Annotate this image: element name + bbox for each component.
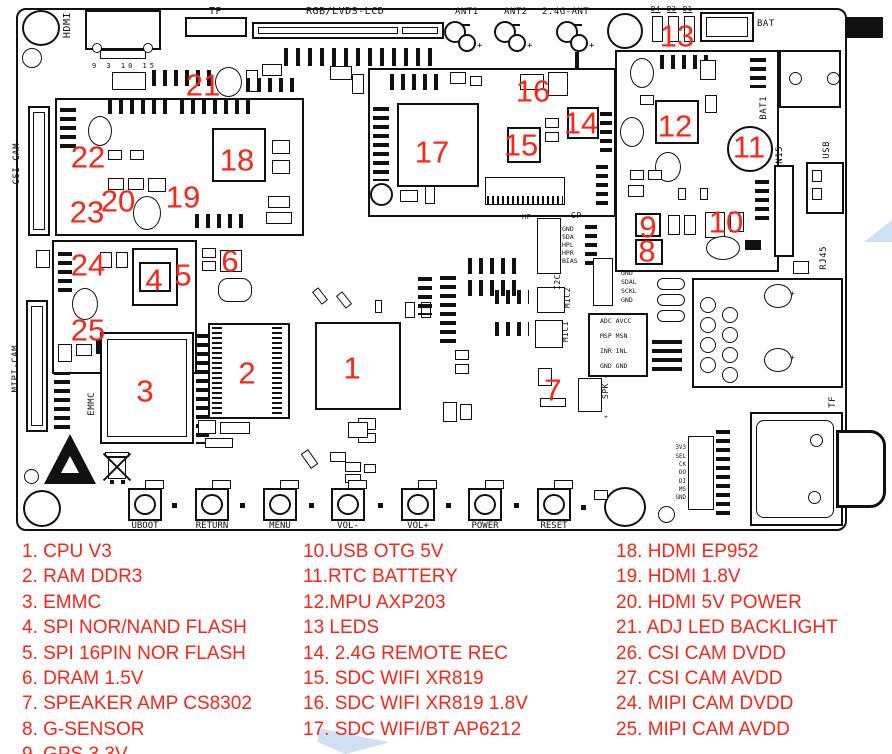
pin-row bbox=[246, 78, 298, 92]
component bbox=[425, 186, 435, 204]
mount-hole bbox=[23, 490, 61, 527]
gp-pin-label: SDA bbox=[562, 234, 574, 241]
legend-item: 5. SPI 16PIN NOR FLASH bbox=[22, 641, 252, 666]
component bbox=[700, 60, 716, 80]
i2c-pin-label: GND bbox=[621, 270, 633, 277]
button-cap bbox=[474, 494, 496, 515]
callout-5: 5 bbox=[174, 260, 191, 291]
audio-pin-label: MSP MSN bbox=[600, 333, 627, 340]
emmc-silk-label: EMMC bbox=[88, 392, 97, 416]
dot bbox=[309, 503, 314, 508]
button-cap bbox=[407, 494, 429, 515]
component bbox=[130, 150, 144, 160]
mount-hole bbox=[658, 506, 675, 523]
component bbox=[722, 347, 738, 363]
tf-pin-label: 3V3 bbox=[668, 446, 686, 452]
uboot-button bbox=[128, 488, 162, 521]
usb-label: USB bbox=[823, 141, 832, 159]
component bbox=[700, 357, 716, 373]
component bbox=[620, 117, 644, 147]
legend-item: 9. GPS 3.3V bbox=[22, 742, 252, 754]
component bbox=[148, 178, 166, 192]
legend-item: 26. CSI CAM DVDD bbox=[616, 641, 838, 666]
callout-25: 25 bbox=[71, 315, 105, 346]
battery-connector-label: BAT bbox=[757, 20, 775, 29]
pcb-annotation-diagram: HDMI 9 3 10 15 TP RGB/LVDS-LCD ANT1 ANT2… bbox=[0, 0, 892, 754]
plus-mark: + bbox=[790, 290, 795, 298]
led-d3-label: D3 bbox=[667, 6, 676, 13]
component bbox=[348, 422, 368, 438]
pin-row bbox=[468, 258, 516, 274]
callout-10: 10 bbox=[709, 207, 743, 238]
button-cap bbox=[543, 494, 565, 515]
callout-6: 6 bbox=[221, 246, 238, 277]
callout-11: 11 bbox=[733, 132, 765, 163]
tf-pin-label: SEL bbox=[668, 455, 686, 461]
component bbox=[455, 364, 469, 374]
pin-row bbox=[495, 290, 529, 304]
callout-21: 21 bbox=[186, 70, 220, 101]
legend-item: 3. EMMC bbox=[22, 590, 252, 615]
ant1-label: ANT1 bbox=[455, 8, 479, 17]
callout-22: 22 bbox=[71, 142, 105, 173]
component bbox=[793, 261, 809, 274]
pin-row bbox=[652, 340, 682, 374]
legend-item: 2. RAM DDR3 bbox=[22, 564, 252, 589]
component bbox=[280, 480, 299, 489]
legend-item: 14. 2.4G REMOTE REC bbox=[303, 641, 528, 666]
tf-pin-label: DO bbox=[668, 471, 686, 477]
component bbox=[145, 480, 164, 489]
dot bbox=[378, 503, 383, 508]
callout-23: 23 bbox=[70, 197, 104, 228]
legend-item: 6. DRAM 1.5V bbox=[22, 666, 252, 691]
component bbox=[455, 350, 469, 360]
callout-17: 17 bbox=[415, 137, 449, 168]
component bbox=[402, 27, 438, 34]
gp-label: GP bbox=[571, 212, 582, 220]
minus-mark bbox=[574, 24, 582, 26]
pin-row bbox=[487, 196, 563, 204]
callout-9: 9 bbox=[639, 212, 656, 243]
component bbox=[545, 118, 559, 128]
legend-item: 13 LEDS bbox=[303, 615, 528, 640]
i2c-header bbox=[593, 258, 613, 306]
component bbox=[460, 404, 472, 420]
component bbox=[648, 170, 662, 180]
legend-item: 21. ADJ LED BACKLIGHT bbox=[616, 615, 838, 640]
component bbox=[418, 480, 437, 489]
component bbox=[218, 278, 252, 302]
tf-pin-label: MS bbox=[668, 488, 686, 494]
callout-12: 12 bbox=[658, 111, 692, 142]
cn15-connector bbox=[774, 165, 794, 257]
legend-item: 12.MPU AXP203 bbox=[303, 590, 528, 615]
component bbox=[706, 236, 740, 260]
pin-row bbox=[284, 48, 436, 66]
dot bbox=[581, 505, 586, 510]
plus-mark: + bbox=[589, 42, 595, 51]
component bbox=[808, 491, 821, 504]
pin-row bbox=[195, 214, 243, 228]
pin-row bbox=[418, 277, 432, 315]
uart-header bbox=[596, 165, 608, 207]
tp-connector bbox=[185, 17, 247, 37]
ant2-label: ANT2 bbox=[504, 8, 528, 17]
callout-4: 4 bbox=[145, 265, 162, 296]
component bbox=[537, 218, 561, 274]
dot bbox=[446, 503, 451, 508]
reset-button-label: RESET bbox=[540, 521, 567, 531]
legend-item: 4. SPI NOR/NAND FLASH bbox=[22, 615, 252, 640]
mipi-cam-label: MIPI-CAM bbox=[12, 345, 21, 392]
tf-pin-label: GND bbox=[668, 496, 686, 502]
component bbox=[348, 480, 367, 489]
component bbox=[268, 196, 290, 208]
component bbox=[789, 72, 802, 85]
tf-pin-label: CK bbox=[668, 463, 686, 469]
tf-pin-label: DI bbox=[668, 480, 686, 486]
component bbox=[764, 348, 792, 372]
legend-item: 7. SPEAKER AMP CS8302 bbox=[22, 691, 252, 716]
component bbox=[756, 420, 834, 518]
component bbox=[684, 215, 696, 235]
component bbox=[266, 212, 292, 224]
bat1-label: BAT1 bbox=[760, 96, 769, 120]
plus-mark: + bbox=[527, 42, 533, 51]
menu-button-label: MENU bbox=[269, 521, 291, 531]
gp-pin-label: HPR bbox=[562, 250, 574, 257]
esd-warning-inner bbox=[61, 456, 79, 473]
legend-item: 19. HDMI 1.8V bbox=[616, 564, 838, 589]
dot bbox=[172, 503, 177, 508]
component bbox=[400, 190, 418, 202]
mic1-part bbox=[535, 320, 563, 348]
component bbox=[630, 58, 654, 88]
component bbox=[272, 140, 290, 154]
pin-row bbox=[390, 74, 442, 90]
component bbox=[108, 150, 122, 160]
component bbox=[700, 297, 716, 313]
component bbox=[33, 112, 45, 230]
tf-label: TF bbox=[829, 396, 838, 408]
pin-row bbox=[212, 327, 222, 415]
csi-cam-label: CSI-CAM bbox=[13, 143, 22, 184]
component bbox=[548, 72, 568, 96]
component bbox=[722, 307, 738, 323]
legend-column-2: 10.USB OTG 5V 11.RTC BATTERY 12.MPU AXP2… bbox=[303, 539, 528, 742]
component bbox=[31, 306, 43, 426]
tf-header bbox=[688, 436, 714, 510]
component bbox=[657, 294, 685, 306]
pin-row bbox=[108, 100, 170, 114]
legend-item: 10.USB OTG 5V bbox=[303, 539, 528, 564]
pin-row bbox=[755, 180, 769, 220]
watermark-arrow bbox=[864, 220, 892, 242]
legend-item: 24. MIPI CAM DVDD bbox=[616, 691, 838, 716]
component bbox=[678, 188, 686, 200]
button-cap bbox=[337, 494, 359, 515]
minus-mark: - bbox=[604, 374, 608, 381]
component bbox=[700, 337, 716, 353]
tf-card bbox=[836, 430, 886, 508]
component bbox=[92, 43, 102, 53]
component bbox=[212, 480, 231, 489]
component bbox=[812, 188, 822, 200]
antenna-pad bbox=[570, 34, 588, 52]
legend-item: 25. MIPI CAM AVDD bbox=[616, 717, 838, 742]
plus-mark: + bbox=[790, 354, 795, 362]
mount-hole bbox=[24, 469, 39, 484]
component bbox=[443, 402, 457, 422]
button-cap bbox=[269, 494, 291, 515]
power-button bbox=[468, 488, 502, 521]
led-d4-label: D4 bbox=[651, 6, 660, 13]
pin-row bbox=[495, 322, 529, 336]
component bbox=[205, 438, 233, 448]
plus-mark: + bbox=[604, 414, 608, 421]
mount-hole bbox=[22, 10, 60, 46]
component bbox=[202, 248, 216, 258]
vol-minus-button-label: VOL- bbox=[337, 521, 359, 531]
legend-item: 16. SDC WIFI XR819 1.8V bbox=[303, 691, 528, 716]
ant-24g-label: 2.4G-ANT bbox=[542, 8, 589, 17]
dc-jack-label: DC bbox=[852, 22, 861, 34]
dot bbox=[514, 503, 519, 508]
component bbox=[594, 490, 608, 500]
component bbox=[100, 50, 146, 59]
vol-plus-button-label: VOL+ bbox=[407, 521, 429, 531]
vol-minus-button bbox=[331, 488, 365, 521]
legend-item: 20. HDMI 5V POWER bbox=[616, 590, 838, 615]
component bbox=[485, 480, 504, 489]
component bbox=[700, 317, 716, 333]
component bbox=[705, 95, 717, 113]
component bbox=[657, 310, 685, 322]
legend-item: 11.RTC BATTERY bbox=[303, 564, 528, 589]
rj45-label: RJ45 bbox=[820, 246, 829, 270]
callout-16: 16 bbox=[516, 76, 550, 107]
uboot-button-label: UBOOT bbox=[131, 521, 158, 531]
lcd-connector-label: RGB/LVDS-LCD bbox=[306, 7, 384, 17]
legend-item: 1. CPU V3 bbox=[22, 539, 252, 564]
gp-pin-label: GND bbox=[562, 226, 574, 233]
component bbox=[116, 252, 128, 268]
i2c-label: I2C bbox=[554, 274, 562, 290]
component bbox=[722, 367, 738, 383]
reset-button bbox=[537, 488, 571, 521]
component bbox=[258, 27, 398, 34]
button-cap bbox=[134, 494, 156, 515]
component bbox=[220, 422, 250, 434]
hdmi-port-label: HDMI bbox=[63, 12, 73, 38]
callout-14: 14 bbox=[564, 108, 598, 139]
minus-mark bbox=[512, 24, 520, 26]
component bbox=[640, 95, 654, 105]
pin-row bbox=[272, 327, 282, 415]
component bbox=[133, 196, 161, 230]
legend-item: 15. SDC WIFI XR819 bbox=[303, 666, 528, 691]
audio-pin-label: ADC AVCC bbox=[600, 318, 631, 325]
component bbox=[668, 215, 680, 235]
led-d1-label: D1 bbox=[683, 6, 692, 13]
weee-bin-icon bbox=[121, 480, 125, 484]
silk-marks: 9 3 10 15 bbox=[92, 63, 157, 70]
legend-item: 18. HDMI EP952 bbox=[616, 539, 838, 564]
component bbox=[364, 464, 376, 473]
callout-3: 3 bbox=[136, 376, 153, 407]
pin-row bbox=[750, 58, 766, 88]
component bbox=[706, 17, 748, 37]
component bbox=[628, 185, 644, 197]
mount-hole bbox=[607, 13, 643, 49]
pin-row bbox=[600, 112, 612, 152]
gp-pin-label: BIAS bbox=[562, 258, 578, 265]
legend-column-3: 18. HDMI EP952 19. HDMI 1.8V 20. HDMI 5V… bbox=[616, 539, 838, 742]
component bbox=[764, 284, 792, 308]
component bbox=[202, 261, 216, 271]
menu-button bbox=[263, 488, 297, 521]
callout-1: 1 bbox=[343, 353, 360, 384]
pin-row bbox=[716, 430, 730, 515]
power-button-label: POWER bbox=[471, 521, 498, 531]
component bbox=[405, 302, 415, 318]
callout-24: 24 bbox=[71, 250, 105, 281]
minus-mark bbox=[462, 24, 470, 26]
audio-pin-label: GND GND bbox=[600, 363, 627, 370]
legend-column-1: 1. CPU V3 2. RAM DDR3 3. EMMC 4. SPI NOR… bbox=[22, 539, 252, 754]
component bbox=[700, 188, 708, 200]
dot bbox=[240, 503, 245, 508]
return-button bbox=[195, 488, 229, 521]
component bbox=[370, 183, 393, 206]
component bbox=[575, 52, 579, 68]
component bbox=[545, 132, 559, 142]
mic2-label: MIC2 bbox=[564, 287, 572, 308]
weee-bin-icon bbox=[110, 480, 114, 484]
component bbox=[722, 327, 738, 343]
component bbox=[812, 170, 822, 182]
legend-item: 8. G-SENSOR bbox=[22, 717, 252, 742]
mic2-part bbox=[537, 287, 565, 313]
speaker-amp-part bbox=[578, 378, 602, 412]
component bbox=[657, 278, 685, 290]
plus-mark: + bbox=[477, 42, 483, 51]
component bbox=[470, 76, 482, 86]
button-cap bbox=[201, 494, 223, 515]
i2c-pin-label: SDAL bbox=[621, 279, 637, 286]
callout-13: 13 bbox=[660, 21, 694, 52]
i2c-pin-label: SCKL bbox=[621, 288, 637, 295]
spk-label: SPK bbox=[602, 383, 610, 399]
component bbox=[330, 452, 346, 462]
component bbox=[112, 72, 146, 90]
i2c-pin-label: GND bbox=[621, 297, 633, 304]
component bbox=[554, 480, 573, 489]
component bbox=[330, 66, 352, 80]
legend-item: 17. SDC WIFI/BT AP6212 bbox=[303, 717, 528, 742]
mic1-label: MIC1 bbox=[562, 321, 570, 342]
component bbox=[272, 160, 290, 174]
callout-15: 15 bbox=[504, 130, 538, 161]
component bbox=[143, 43, 153, 53]
component bbox=[450, 72, 466, 84]
component bbox=[375, 300, 382, 313]
callout-19: 19 bbox=[166, 182, 200, 213]
callout-7: 7 bbox=[544, 375, 561, 406]
component bbox=[345, 462, 361, 472]
return-button-label: RETURN bbox=[196, 521, 229, 531]
callout-2: 2 bbox=[238, 358, 255, 389]
audio-pin-label: INR INL bbox=[600, 348, 627, 355]
component bbox=[352, 74, 364, 94]
component bbox=[810, 434, 823, 447]
component bbox=[198, 420, 216, 434]
callout-18: 18 bbox=[220, 145, 254, 176]
legend-item: 27. CSI CAM AVDD bbox=[616, 666, 838, 691]
component bbox=[630, 170, 644, 180]
callout-20: 20 bbox=[101, 186, 135, 217]
antenna-pad bbox=[508, 34, 526, 52]
mount-hole bbox=[22, 48, 42, 68]
pin-row bbox=[440, 276, 456, 346]
component bbox=[262, 64, 282, 76]
vol-plus-button bbox=[401, 488, 435, 521]
pin-row bbox=[373, 107, 389, 181]
antenna-pad bbox=[458, 34, 476, 52]
hp-label: HP bbox=[522, 214, 531, 221]
component bbox=[36, 250, 50, 268]
component bbox=[827, 72, 840, 85]
gp-pin-label: HPL bbox=[562, 242, 574, 249]
tp-connector-label: TP bbox=[209, 7, 222, 17]
component bbox=[745, 240, 761, 250]
mount-hole bbox=[604, 487, 646, 527]
